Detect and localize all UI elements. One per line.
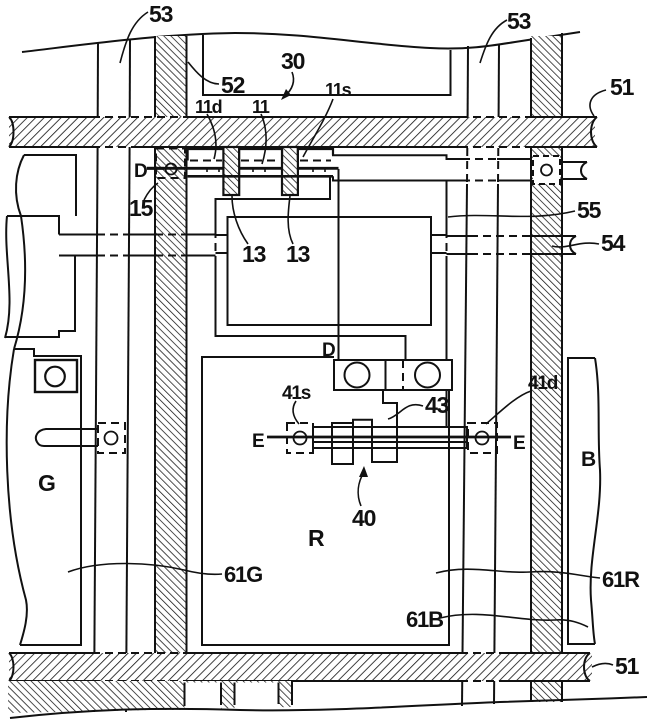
svg-text:13: 13 [286,241,310,267]
svg-text:11d: 11d [195,97,222,117]
svg-text:53: 53 [507,8,531,34]
svg-text:52: 52 [221,72,245,98]
svg-text:55: 55 [577,197,602,223]
svg-text:61B: 61B [406,607,443,632]
svg-text:11: 11 [252,97,270,117]
svg-text:13: 13 [242,241,266,267]
svg-text:40: 40 [352,505,376,531]
svg-text:E: E [513,433,525,454]
svg-text:51: 51 [615,653,640,679]
svg-text:E: E [252,431,264,452]
svg-text:G: G [38,470,55,496]
svg-text:61G: 61G [224,562,262,587]
svg-text:41s: 41s [282,383,311,404]
svg-text:43: 43 [425,392,449,418]
svg-text:54: 54 [601,230,626,256]
svg-text:15: 15 [129,195,154,221]
svg-text:R: R [308,525,325,551]
svg-text:51: 51 [610,74,635,100]
svg-text:D: D [134,161,147,182]
svg-text:30: 30 [281,48,305,74]
svg-text:11s: 11s [325,80,352,100]
svg-text:41d: 41d [528,373,558,394]
svg-text:D: D [322,340,335,361]
svg-text:53: 53 [149,1,173,27]
svg-text:B: B [581,448,596,471]
svg-text:61R: 61R [602,567,640,592]
